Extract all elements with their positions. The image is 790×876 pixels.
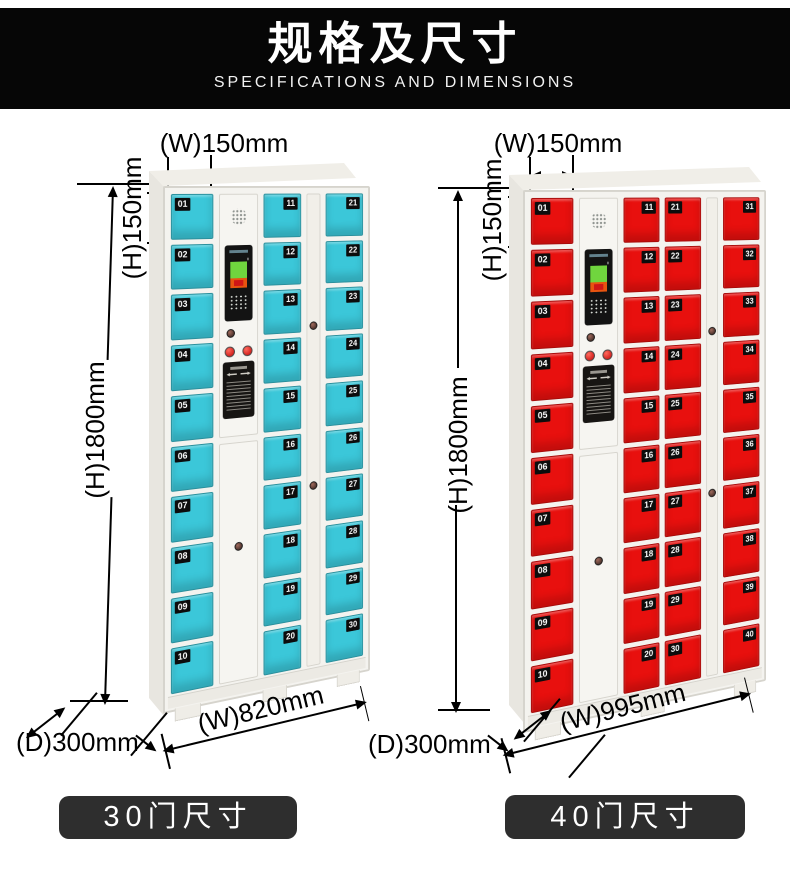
- door-number-tag: 10: [175, 649, 191, 665]
- door-number-tag: 40: [743, 627, 756, 641]
- page-subtitle: SPECIFICATIONS AND DIMENSIONS: [0, 74, 790, 92]
- door-number-tag: 26: [668, 446, 682, 460]
- door-number-tag: 32: [743, 248, 756, 260]
- cabinet-front: 01020304050607080910: [163, 186, 370, 714]
- door-number-tag: 23: [346, 291, 360, 303]
- lock-icon: [587, 333, 595, 342]
- locker-door-39: 39: [723, 576, 759, 626]
- page-title: 规格及尺寸: [0, 19, 790, 69]
- storage-door: [219, 440, 258, 685]
- side-lock-column: [306, 194, 320, 668]
- locker-door-07: 07: [171, 492, 213, 543]
- door-number-tag: 15: [283, 389, 297, 402]
- locker-door-10: 10: [171, 641, 213, 694]
- door-number-tag: 37: [743, 485, 756, 498]
- lock-icon: [310, 481, 318, 490]
- side-lock-column: [706, 197, 718, 677]
- door-number-tag: 20: [283, 629, 297, 644]
- door-number-tag: 27: [346, 478, 360, 492]
- sticker-header: [230, 366, 247, 370]
- locker-door-36: 36: [723, 434, 759, 481]
- door-number-tag: 03: [535, 305, 551, 318]
- locker-door-33: 33: [723, 292, 759, 337]
- locker-door-12: 12: [264, 241, 302, 286]
- door-number-tag: 33: [743, 296, 756, 308]
- door-number-tag: 04: [175, 348, 191, 362]
- door-number-tag: 31: [743, 201, 756, 213]
- door-number-tag: 02: [535, 254, 551, 267]
- button-row: [585, 349, 613, 362]
- locker-door-19: 19: [624, 593, 660, 644]
- locker-door-19: 19: [264, 577, 302, 627]
- lcd-screen: [230, 261, 247, 278]
- door-column-21-30: 21222324252627282930: [665, 197, 701, 685]
- door-number-tag: 24: [346, 337, 360, 350]
- door-column-21-30: 21222324252627282930: [326, 193, 363, 663]
- cabinet-side-panel: [509, 175, 524, 723]
- door-number-tag: 35: [743, 390, 756, 403]
- locker-door-24: 24: [326, 333, 363, 378]
- door-number-tag: 13: [283, 293, 297, 306]
- red-button-icon: [242, 345, 252, 356]
- door-number-tag: 17: [642, 498, 656, 512]
- door-number-tag: 14: [283, 341, 297, 354]
- locker-door-29: 29: [665, 586, 701, 637]
- speaker-icon: [591, 212, 607, 229]
- dim-height-label-40: (H)1800mm: [443, 360, 473, 530]
- door-number-tag: 19: [642, 597, 656, 612]
- dim-height-line: [455, 505, 457, 711]
- door-number-tag: 14: [642, 350, 656, 363]
- header-banner: 规格及尺寸 SPECIFICATIONS AND DIMENSIONS: [0, 8, 790, 109]
- door-number-tag: 06: [175, 449, 191, 463]
- lock-icon: [708, 488, 716, 497]
- red-button-icon: [585, 350, 595, 361]
- door-number-tag: 17: [283, 485, 297, 499]
- door-column-11-20: 11121314151617181920: [264, 194, 302, 676]
- locker-door-15: 15: [264, 385, 302, 432]
- locker-door-04: 04: [531, 351, 573, 401]
- locker-door-02: 02: [171, 244, 213, 291]
- storage-door: [579, 452, 618, 704]
- locker-door-28: 28: [665, 537, 701, 587]
- locker-door-05: 05: [531, 402, 573, 453]
- lock-icon: [234, 542, 242, 552]
- locker-door-13: 13: [264, 289, 302, 335]
- locker-door-13: 13: [624, 296, 660, 343]
- camera-dot-icon: [247, 257, 249, 259]
- locker-door-28: 28: [326, 520, 363, 568]
- lock-icon: [310, 321, 318, 330]
- door-number-tag: 09: [535, 615, 551, 630]
- locker-door-01: 01: [531, 198, 573, 245]
- locker-door-23: 23: [326, 287, 363, 331]
- cabinet-top-panel: [509, 167, 764, 191]
- locker-door-17: 17: [624, 494, 660, 544]
- locker-door-02: 02: [531, 249, 573, 297]
- door-number-tag: 18: [283, 533, 297, 547]
- locker-door-34: 34: [723, 339, 759, 385]
- sticker-header: [590, 370, 607, 374]
- dim-tick: [70, 700, 128, 702]
- camera-dot-icon: [607, 261, 609, 263]
- dim-height-line: [104, 497, 112, 703]
- dim-door-height-label-30: (H)150mm: [117, 138, 147, 298]
- locker-door-37: 37: [723, 481, 759, 529]
- door-number-tag: 12: [283, 245, 297, 258]
- dim-height-line: [107, 188, 114, 360]
- locker-door-35: 35: [723, 387, 759, 434]
- door-number-tag: 22: [668, 250, 682, 262]
- sticker-text-lines: [587, 382, 611, 415]
- brand-logo: [589, 254, 608, 257]
- arrow-right-icon: [601, 375, 611, 379]
- dim-door-width-label-30: (W)150mm: [130, 128, 318, 158]
- door-number-tag: 05: [175, 398, 191, 412]
- locker-door-30: 30: [326, 614, 363, 664]
- door-number-tag: 39: [743, 580, 756, 594]
- door-column-01-10: 01020304050607080910: [531, 198, 573, 714]
- locker-door-05: 05: [171, 393, 213, 442]
- arrow-left-icon: [227, 372, 237, 376]
- locker-door-17: 17: [264, 481, 302, 530]
- lock-icon: [708, 327, 716, 336]
- keypad-icon: [229, 294, 248, 309]
- door-number-tag: 13: [642, 300, 656, 313]
- locker-door-20: 20: [264, 625, 302, 676]
- screen-banner: [230, 277, 247, 287]
- dim-height-line: [457, 192, 459, 368]
- door-number-tag: 05: [535, 408, 551, 422]
- locker-door-26: 26: [326, 427, 363, 474]
- door-number-tag: 12: [642, 251, 656, 264]
- door-number-tag: 09: [175, 599, 191, 614]
- screen-banner: [590, 281, 607, 291]
- door-number-tag: 16: [642, 449, 656, 463]
- brand-logo: [229, 250, 248, 253]
- locker-door-14: 14: [624, 346, 660, 394]
- door-number-tag: 28: [346, 524, 360, 538]
- dim-door-height-label-40: (H)150mm: [477, 140, 507, 300]
- control-door: [219, 194, 258, 439]
- door-number-tag: 21: [346, 197, 360, 209]
- locker-door-24: 24: [665, 343, 701, 390]
- door-number-tag: 15: [642, 399, 656, 412]
- locker-door-25: 25: [326, 380, 363, 426]
- door-number-tag: 29: [346, 571, 360, 585]
- door-number-tag: 07: [535, 512, 551, 527]
- control-door: [579, 198, 618, 450]
- locker-door-08: 08: [531, 556, 573, 609]
- cabinet-side-panel: [149, 171, 164, 716]
- door-number-tag: 18: [642, 548, 656, 562]
- locker-door-21: 21: [665, 197, 701, 242]
- door-number-tag: 23: [668, 299, 682, 312]
- locker-door-08: 08: [171, 542, 213, 594]
- door-number-tag: 06: [535, 460, 551, 474]
- locker-40-size-badge: 40门尺寸: [505, 795, 745, 839]
- door-number-tag: 34: [743, 343, 756, 356]
- sticker-text-lines: [227, 378, 251, 411]
- cabinet-top-panel: [149, 163, 359, 187]
- door-number-tag: 07: [175, 499, 191, 514]
- door-number-tag: 20: [642, 646, 656, 661]
- door-column-11-20: 11121314151617181920: [624, 198, 660, 695]
- lock-icon: [594, 556, 602, 566]
- door-number-tag: 25: [668, 397, 682, 410]
- locker-door-15: 15: [624, 395, 660, 443]
- door-column-01-10: 01020304050607080910: [171, 194, 213, 695]
- locker-door-22: 22: [326, 240, 363, 284]
- locker-door-06: 06: [531, 454, 573, 506]
- door-number-tag: 28: [668, 544, 682, 558]
- arrow-right-icon: [241, 371, 251, 375]
- dim-depth-label-40: (D)300mm: [368, 729, 491, 759]
- door-number-tag: 29: [668, 593, 682, 607]
- control-column: [579, 198, 618, 704]
- instruction-sticker: [223, 360, 255, 419]
- locker-door-29: 29: [326, 567, 363, 616]
- lock-icon: [227, 329, 235, 338]
- control-panel: [585, 249, 613, 326]
- locker-door-16: 16: [264, 433, 302, 481]
- locker-door-16: 16: [624, 444, 660, 493]
- door-number-tag: 26: [346, 431, 360, 444]
- door-number-tag: 38: [743, 533, 756, 547]
- locker-40-cabinet: 01020304050607080910: [523, 190, 766, 733]
- locker-door-06: 06: [171, 442, 213, 492]
- door-number-tag: 02: [175, 248, 191, 261]
- dim-height-label-30: (H)1800mm: [80, 345, 110, 515]
- door-column-31-40: 31323334353637383940: [723, 197, 759, 673]
- door-number-tag: 03: [175, 298, 191, 311]
- locker-door-26: 26: [665, 440, 701, 488]
- locker-door-04: 04: [171, 343, 213, 391]
- locker-door-18: 18: [624, 543, 660, 594]
- locker-door-09: 09: [531, 607, 573, 661]
- locker-door-12: 12: [624, 247, 660, 293]
- door-number-tag: 01: [175, 198, 191, 211]
- door-number-tag: 30: [668, 641, 682, 656]
- door-number-tag: 30: [346, 618, 360, 632]
- locker-door-25: 25: [665, 392, 701, 440]
- locker-door-18: 18: [264, 529, 302, 578]
- door-number-tag: 01: [535, 202, 551, 215]
- door-number-tag: 04: [535, 357, 551, 371]
- locker-door-11: 11: [624, 198, 660, 243]
- keypad-icon: [589, 298, 608, 313]
- door-number-tag: 21: [668, 201, 682, 213]
- door-number-tag: 27: [668, 495, 682, 509]
- door-number-tag: 10: [535, 667, 551, 683]
- door-number-tag: 11: [284, 197, 298, 209]
- locker-door-07: 07: [531, 505, 573, 557]
- door-number-tag: 25: [346, 384, 360, 397]
- door-number-tag: 24: [668, 348, 682, 361]
- arrow-left-icon: [587, 376, 597, 380]
- speaker-icon: [231, 208, 247, 225]
- page: 规格及尺寸 SPECIFICATIONS AND DIMENSIONS (W)1…: [0, 0, 790, 876]
- button-row: [225, 345, 253, 358]
- dim-tick: [568, 734, 605, 778]
- control-panel: [225, 245, 253, 322]
- door-number-tag: 36: [743, 438, 756, 451]
- locker-door-27: 27: [665, 489, 701, 538]
- red-button-icon: [602, 349, 612, 360]
- locker-30-cabinet: 01020304050607080910: [163, 186, 370, 714]
- locker-door-01: 01: [171, 194, 213, 240]
- locker-door-27: 27: [326, 473, 363, 520]
- dim-tick: [438, 709, 490, 711]
- door-number-tag: 08: [535, 563, 551, 578]
- locker-door-31: 31: [723, 197, 759, 241]
- lcd-screen: [590, 265, 607, 282]
- locker-door-21: 21: [326, 193, 363, 236]
- red-button-icon: [225, 346, 235, 357]
- door-number-tag: 11: [642, 201, 656, 213]
- door-number-tag: 08: [175, 549, 191, 564]
- locker-door-03: 03: [531, 300, 573, 349]
- locker-door-38: 38: [723, 528, 759, 577]
- locker-door-03: 03: [171, 293, 213, 340]
- cabinet-front: 01020304050607080910: [523, 190, 766, 733]
- locker-door-23: 23: [665, 294, 701, 340]
- locker-door-32: 32: [723, 245, 759, 289]
- control-column: [219, 194, 258, 685]
- instruction-sticker: [583, 364, 615, 423]
- door-number-tag: 16: [283, 437, 297, 451]
- locker-door-14: 14: [264, 337, 302, 383]
- locker-door-22: 22: [665, 246, 701, 291]
- locker-door-11: 11: [264, 194, 302, 238]
- door-number-tag: 22: [346, 244, 360, 256]
- door-number-tag: 19: [283, 581, 297, 596]
- locker-30-size-badge: 30门尺寸: [59, 796, 297, 839]
- locker-door-09: 09: [171, 591, 213, 644]
